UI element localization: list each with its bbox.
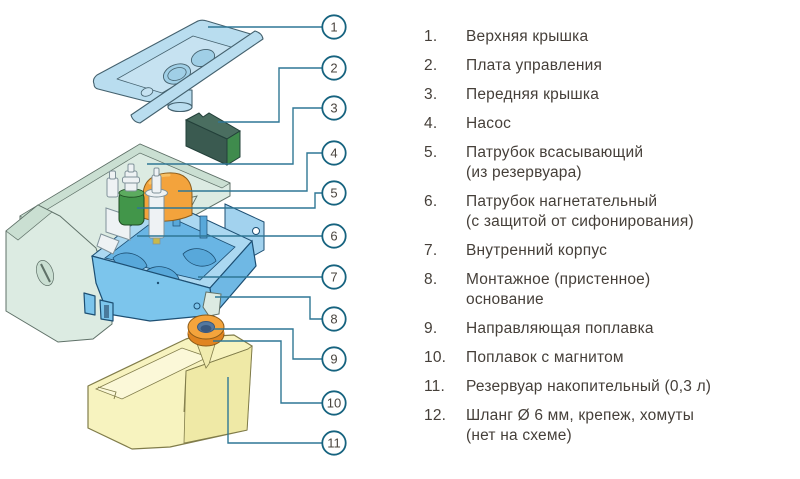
callout-number: 9 <box>330 352 337 367</box>
list-item-number: 9. <box>424 319 466 339</box>
list-item-label-line: Плата управления <box>466 56 602 76</box>
list-item-label-line: (из резервуара) <box>466 163 643 183</box>
list-item-number: 3. <box>424 85 466 105</box>
callout-bubbles: 1234567891011 <box>322 15 345 454</box>
callout-number: 3 <box>330 101 337 116</box>
list-item-label-line: Монтажное (пристенное) <box>466 270 650 290</box>
parts-list-item: 8.Монтажное (пристенное)основание <box>424 270 780 310</box>
list-item-number: 7. <box>424 241 466 261</box>
parts-list-item: 11.Резервуар накопительный (0,3 л) <box>424 377 780 397</box>
callout-number: 5 <box>330 186 337 201</box>
list-item-number: 8. <box>424 270 466 310</box>
callout-number: 7 <box>330 270 337 285</box>
list-item-label: Резервуар накопительный (0,3 л) <box>466 377 711 397</box>
parts-list-item: 2.Плата управления <box>424 56 780 76</box>
list-item-label-line: Поплавок с магнитом <box>466 348 624 368</box>
parts-list: 1.Верхняя крышка2.Плата управления3.Пере… <box>424 27 780 455</box>
list-item-label: Внутренний корпус <box>466 241 607 261</box>
control-board-part <box>186 113 240 165</box>
list-item-label: Верхняя крышка <box>466 27 588 47</box>
list-item-number: 4. <box>424 114 466 134</box>
list-item-label: Плата управления <box>466 56 602 76</box>
callout-number: 10 <box>327 396 341 411</box>
parts-list-item: 3.Передняя крышка <box>424 85 780 105</box>
list-item-number: 6. <box>424 192 466 232</box>
list-item-label-line: Насос <box>466 114 511 134</box>
list-item-label: Поплавок с магнитом <box>466 348 624 368</box>
parts-list-item: 6.Патрубок нагнетательный(с защитой от с… <box>424 192 780 232</box>
list-item-label-line: Верхняя крышка <box>466 27 588 47</box>
callout-number: 11 <box>327 436 341 451</box>
parts-list-item: 4.Насос <box>424 114 780 134</box>
list-item-label-line: (нет на схеме) <box>466 426 694 446</box>
list-item-label: Монтажное (пристенное)основание <box>466 270 650 310</box>
list-item-label-line: основание <box>466 290 650 310</box>
list-item-label-line: Патрубок всасывающий <box>466 143 643 163</box>
parts-list-item: 1.Верхняя крышка <box>424 27 780 47</box>
list-item-label: Патрубок всасывающий(из резервуара) <box>466 143 643 183</box>
list-item-label: Шланг Ø 6 мм, крепеж, хомуты(нет на схем… <box>466 406 694 446</box>
parts-list-item: 9.Направляющая поплавка <box>424 319 780 339</box>
list-item-number: 2. <box>424 56 466 76</box>
list-item-number: 12. <box>424 406 466 446</box>
callout-number: 1 <box>330 20 337 35</box>
list-item-label-line: (с защитой от сифонирования) <box>466 212 694 232</box>
callout-number: 2 <box>330 61 337 76</box>
parts-list-item: 5.Патрубок всасывающий(из резервуара) <box>424 143 780 183</box>
list-item-label-line: Резервуар накопительный (0,3 л) <box>466 377 711 397</box>
exploded-diagram: 1234567891011 <box>0 0 400 479</box>
list-item-label: Направляющая поплавка <box>466 319 654 339</box>
parts-list-item: 10.Поплавок с магнитом <box>424 348 780 368</box>
list-item-label-line: Передняя крышка <box>466 85 599 105</box>
list-item-label-line: Направляющая поплавка <box>466 319 654 339</box>
list-item-number: 11. <box>424 377 466 397</box>
top-cover-part <box>93 20 263 123</box>
list-item-label-line: Внутренний корпус <box>466 241 607 261</box>
list-item-number: 5. <box>424 143 466 183</box>
list-item-number: 1. <box>424 27 466 47</box>
callout-line-2 <box>218 68 322 122</box>
callout-number: 8 <box>330 312 337 327</box>
list-item-label: Патрубок нагнетательный(с защитой от сиф… <box>466 192 694 232</box>
list-item-label: Передняя крышка <box>466 85 599 105</box>
list-item-number: 10. <box>424 348 466 368</box>
list-item-label: Насос <box>466 114 511 134</box>
exploded-view-infographic: 1234567891011 1.Верхняя крышка2.Плата уп… <box>0 0 800 479</box>
list-item-label-line: Патрубок нагнетательный <box>466 192 694 212</box>
parts-list-item: 7.Внутренний корпус <box>424 241 780 261</box>
parts-list-item: 12.Шланг Ø 6 мм, крепеж, хомуты(нет на с… <box>424 406 780 446</box>
callout-number: 4 <box>330 146 337 161</box>
list-item-label-line: Шланг Ø 6 мм, крепеж, хомуты <box>466 406 694 426</box>
callout-number: 6 <box>330 229 337 244</box>
callout-line-8 <box>215 297 322 319</box>
